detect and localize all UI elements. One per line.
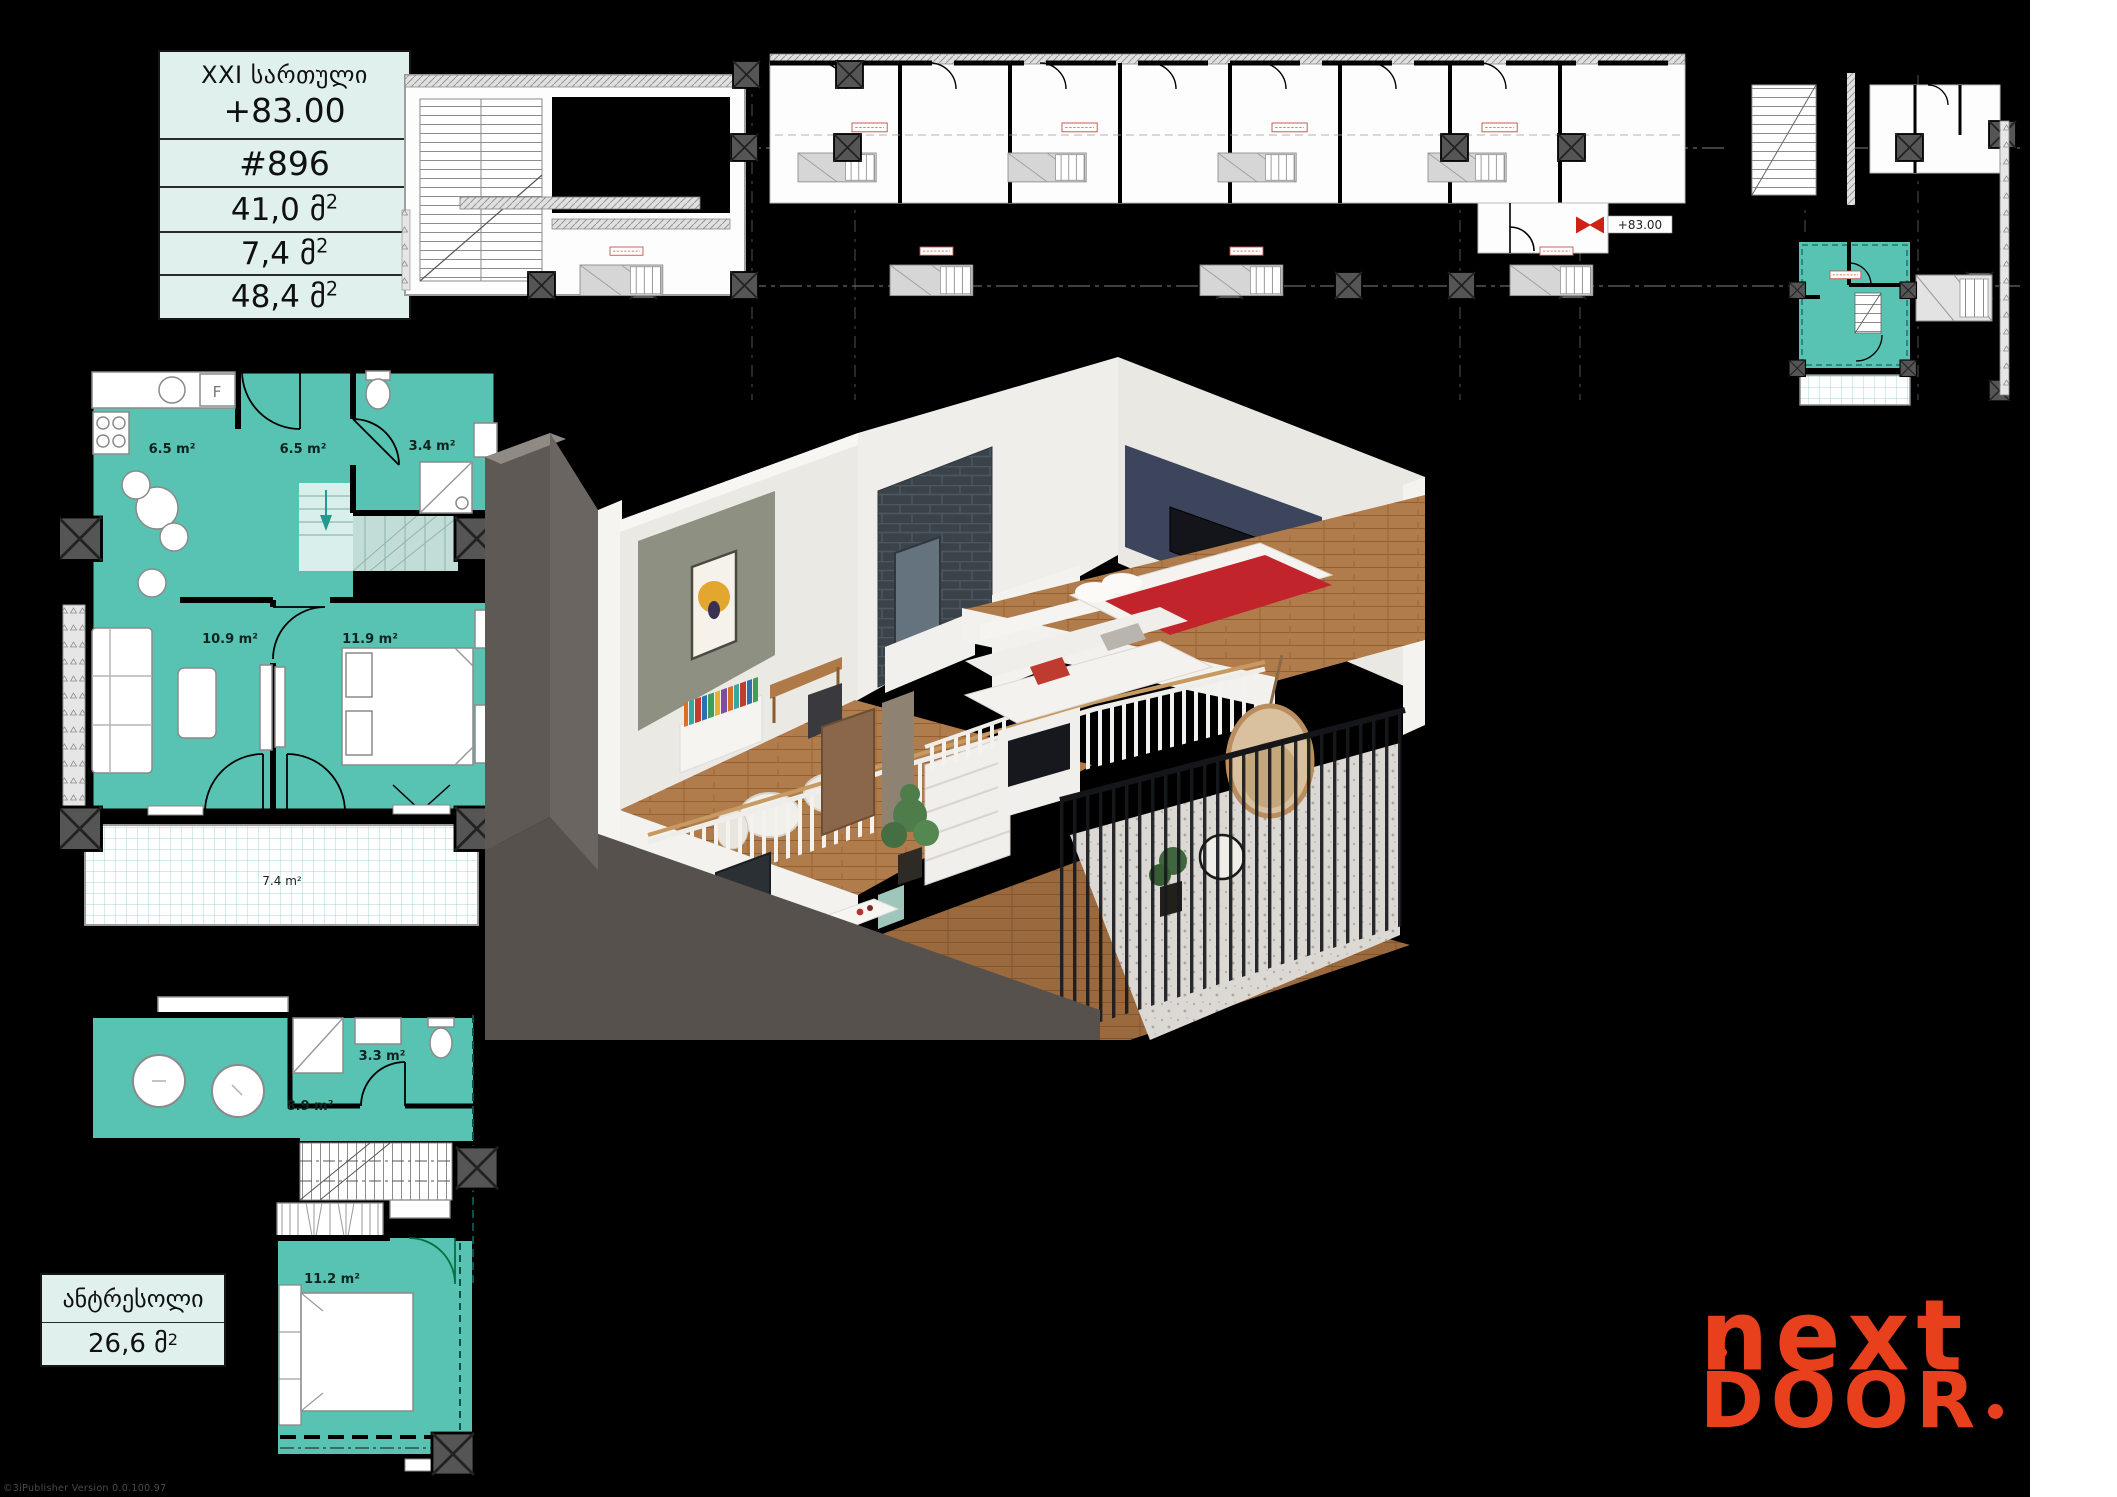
area-main-sup: 2 — [326, 190, 338, 213]
sofa — [92, 628, 152, 773]
area-balcony-sup: 2 — [316, 234, 328, 257]
corridor-wall-band — [460, 197, 700, 209]
sink — [355, 1018, 401, 1044]
window-band-left — [63, 605, 85, 810]
highlighted-unit — [1789, 240, 1992, 405]
living-label: 10.9 m² — [202, 632, 258, 647]
info-row-unit-number: #896 — [160, 138, 409, 186]
mezzanine-title: ანტრესოლი — [42, 1275, 224, 1322]
stair-core-center — [1725, 73, 1855, 205]
logo-period: . — [1988, 1404, 2003, 1419]
mezzanine-info-table: ანტრესოლი 26,6 მ2 — [40, 1273, 226, 1367]
logo-mini-dot — [1718, 1348, 1727, 1357]
chair — [160, 523, 188, 551]
headboard-shelf — [279, 1285, 301, 1425]
toilet-icon — [430, 1028, 452, 1058]
fridge-label: F — [213, 383, 222, 401]
staircase — [925, 717, 1010, 885]
area-balcony-value: 7,4 მ — [241, 236, 316, 272]
area-total: 48,4 მ2 — [160, 279, 409, 315]
area-main-value: 41,0 მ — [231, 192, 326, 228]
stairwell-block-left — [402, 75, 745, 295]
elevation-marker-label: +83.00 — [1618, 218, 1662, 232]
wardrobe-hatched — [277, 1200, 450, 1236]
info-row-area-total: 48,4 მ2 — [160, 274, 409, 318]
coffee-table — [178, 668, 216, 738]
balcony-label: 7.4 m² — [262, 874, 302, 888]
artwork — [692, 551, 736, 659]
kitchen-label: 6.5 m² — [149, 442, 196, 457]
toilet-tank — [428, 1018, 454, 1027]
brochure-page: XXI სართული +83.00 #896 41,0 მ2 7,4 მ2 4… — [0, 0, 2117, 1497]
unit-balcony — [1800, 375, 1910, 405]
unit-number: #896 — [160, 144, 409, 183]
units-band-top — [770, 54, 1685, 253]
info-row-area-balcony: 7,4 მ2 — [160, 231, 409, 274]
mezz-bath-label: 3.3 m² — [359, 1049, 406, 1064]
tv-stand — [275, 667, 285, 747]
chair — [138, 569, 166, 597]
right-margin-strip — [2030, 0, 2117, 1497]
area-main: 41,0 მ2 — [160, 192, 409, 228]
rooms-block-top-right — [1870, 85, 2000, 173]
watermark: ©3iPublisher Version 0.0.100.97 — [3, 1483, 166, 1494]
unit-info-table: XXI სართული +83.00 #896 41,0 მ2 7,4 მ2 4… — [158, 50, 411, 320]
bathroom-label: 3.4 m² — [409, 439, 456, 454]
mezzanine-area: 26,6 მ2 — [42, 1322, 224, 1365]
pillow — [346, 711, 372, 755]
unit-floor-plan: 6.5 m² 6.5 m² 3.4 m² 10.9 m² 11.9 m² 7.4… — [60, 365, 500, 940]
apartment-3d-render — [470, 295, 1430, 1040]
area-total-value: 48,4 მ — [231, 279, 326, 315]
facade-glazing-right — [2000, 121, 2009, 395]
tv-stand — [260, 665, 272, 750]
mezzanine-floor-plan: 8.9 m² 3.3 m² 11.2 m² — [60, 985, 500, 1497]
bedroom-label: 11.9 m² — [342, 632, 398, 647]
area-total-sup: 2 — [326, 278, 338, 301]
pillow — [346, 653, 372, 697]
nextdoor-logo: next DOOR . — [1700, 1308, 2010, 1468]
mezz-bedroom-label: 11.2 m² — [304, 1272, 360, 1287]
chair — [122, 471, 150, 499]
mezz-stairs — [300, 1143, 452, 1200]
elevation-value: +83.00 — [160, 91, 409, 130]
bed — [301, 1293, 413, 1411]
toilet-icon — [366, 379, 390, 409]
logo-line1: next — [1700, 1307, 2010, 1366]
mezz-hall-label: 8.9 m² — [287, 1099, 334, 1114]
hall-label: 6.5 m² — [280, 442, 327, 457]
info-row-floor: XXI სართული +83.00 — [160, 52, 409, 138]
floor-label: XXI სართული — [160, 61, 409, 89]
info-row-area-main: 41,0 მ2 — [160, 186, 409, 231]
area-balcony: 7,4 მ2 — [160, 236, 409, 272]
mezzanine-area-value: 26,6 მ — [88, 1329, 168, 1359]
